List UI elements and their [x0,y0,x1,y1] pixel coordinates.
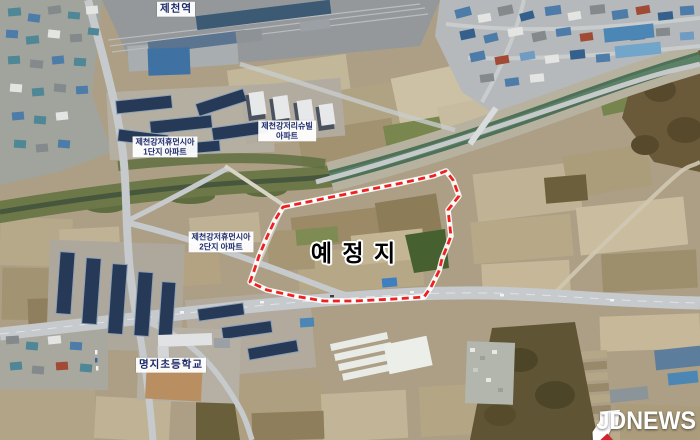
label-planned-site: 예 정 지 [311,234,397,268]
apartment1-name: 제천강저휴먼시아 [136,137,195,147]
apartment1-unit: 1단지 아파트 [136,147,195,157]
label-myeongji-elementary-school: 명지초등학교 [136,358,206,373]
school-label-text: 명지초등학교 [139,359,203,371]
apartment3-name: 제천강저휴먼시아 [192,232,251,242]
label-apartment-richville: 제천강저리슈빌 아파트 [258,120,316,141]
blue-roof-shed [382,277,398,287]
jdnews-watermark: JDNEWS [589,409,696,434]
jdnews-logo-text: JDNEWS [597,409,696,434]
label-jecheon-station: 제천역 [157,2,195,17]
apartment3-unit: 2단지 아파트 [192,242,251,252]
station-label-text: 제천역 [160,3,192,15]
apartment2-unit: 아파트 [261,131,313,141]
apartment2-name: 제천강저리슈빌 [261,121,313,131]
satellite-imagery [0,0,700,440]
station-building [148,47,191,75]
label-apartment-humansia-2: 제천강저휴먼시아 2단지 아파트 [189,231,254,252]
aerial-map: 제천역 제천강저휴먼시아 1단지 아파트 제천강저리슈빌 아파트 제천강저휴먼시… [0,0,700,440]
label-apartment-humansia-1: 제천강저휴먼시아 1단지 아파트 [133,136,198,157]
